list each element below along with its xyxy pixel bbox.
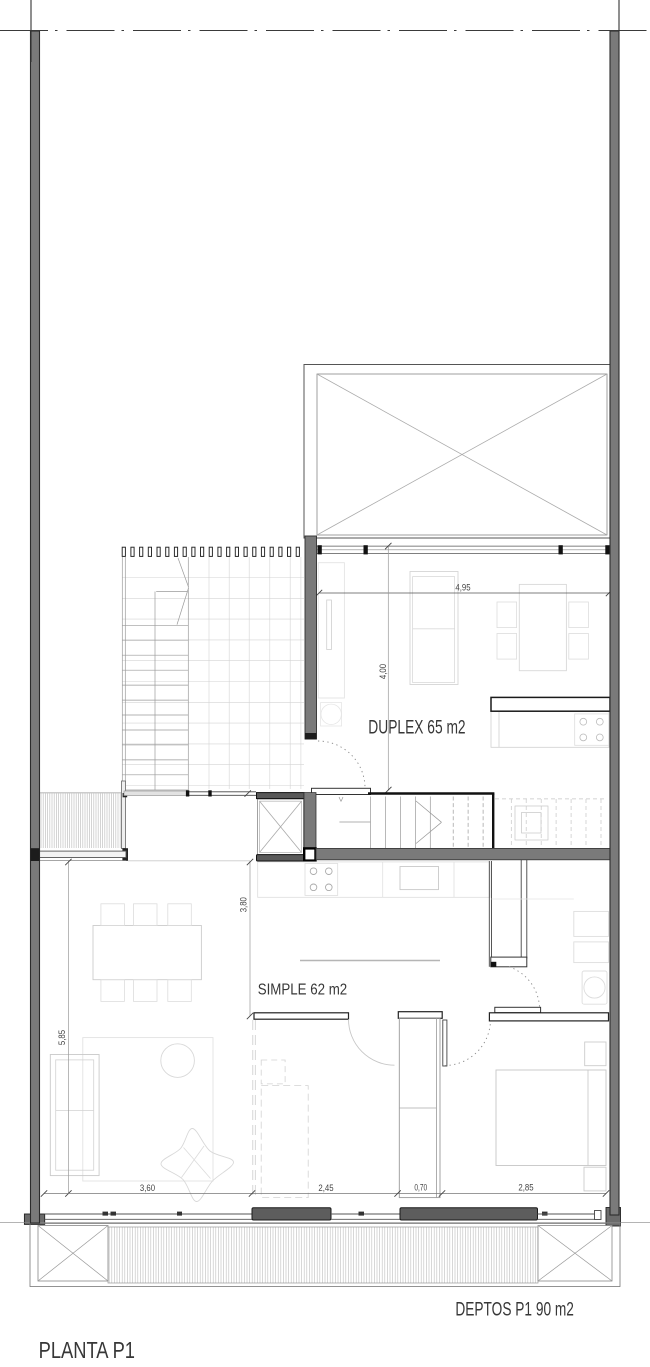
- svg-text:SIMPLE 62 m2: SIMPLE 62 m2: [258, 982, 348, 999]
- svg-text:3,60: 3,60: [140, 1183, 155, 1193]
- svg-text:5,85: 5,85: [57, 1030, 67, 1045]
- svg-text:3,80: 3,80: [239, 897, 249, 912]
- svg-text:0,70: 0,70: [414, 1182, 427, 1192]
- svg-text:PLANTA P1: PLANTA P1: [39, 1337, 135, 1363]
- svg-text:4,95: 4,95: [455, 582, 470, 592]
- svg-text:DUPLEX 65 m2: DUPLEX 65 m2: [368, 718, 465, 739]
- svg-text:2,85: 2,85: [518, 1182, 533, 1192]
- svg-text:DEPTOS P1 90 m2: DEPTOS P1 90 m2: [455, 1300, 574, 1321]
- svg-text:4,00: 4,00: [378, 664, 388, 679]
- svg-text:2,45: 2,45: [318, 1183, 333, 1193]
